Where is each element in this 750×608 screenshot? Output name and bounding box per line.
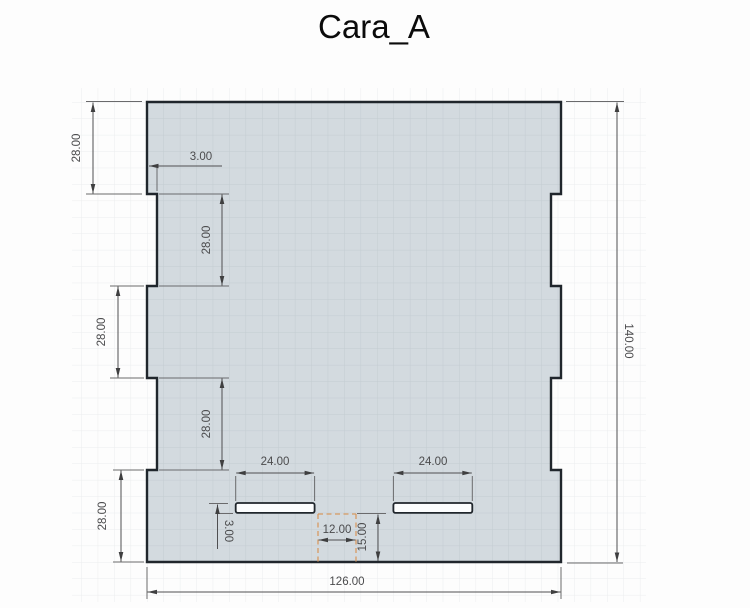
slot-left[interactable]	[236, 503, 315, 513]
part-face[interactable]	[147, 102, 561, 562]
part-fill-grid	[147, 102, 561, 562]
dim-label-overall-height: 140.00	[622, 323, 634, 358]
dim-label-left-bottom: 28.00	[97, 502, 109, 531]
drawing-canvas[interactable]: 28.00 3.00 28.00 28.00 28.00 28.00	[0, 0, 750, 608]
dim-label-slot-right-width: 24.00	[419, 456, 448, 468]
drawing-title: Cara_A	[318, 8, 430, 45]
dim-label-inner-upper: 28.00	[201, 226, 213, 255]
slot-right[interactable]	[393, 503, 472, 513]
dim-label-inner-lower: 28.00	[201, 410, 213, 439]
dim-label-slot-center-gap: 12.00	[323, 524, 352, 536]
dim-label-slot-height: 3.00	[222, 520, 234, 542]
dim-label-slot-left-width: 24.00	[261, 456, 290, 468]
dim-label-overall-width: 126.00	[329, 576, 364, 588]
dim-label-tab-depth: 3.00	[190, 151, 212, 163]
dim-label-left-middle: 28.00	[96, 318, 108, 347]
dim-label-left-top: 28.00	[71, 134, 83, 163]
dim-label-slot-bottom-offset: 15.00	[357, 523, 369, 552]
